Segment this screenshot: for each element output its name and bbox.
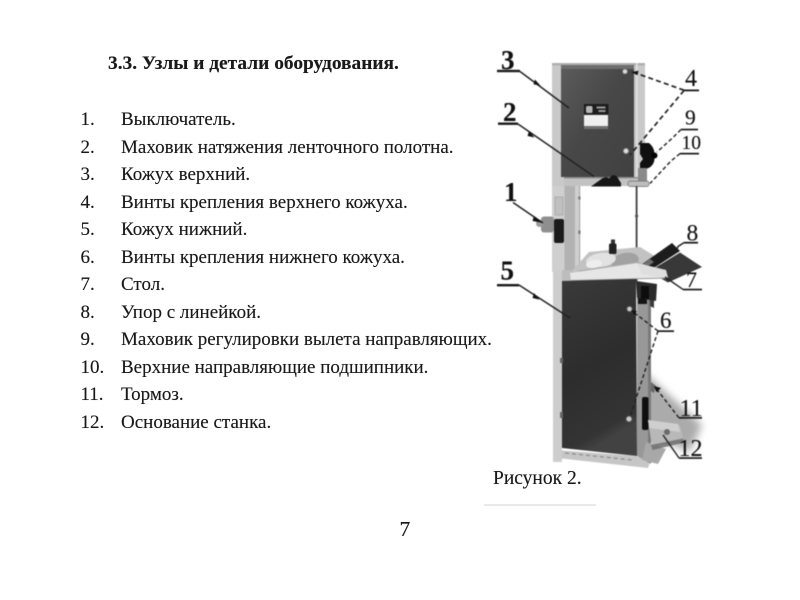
svg-text:9: 9 [685, 106, 696, 130]
svg-text:10: 10 [682, 133, 702, 154]
svg-text:4: 4 [685, 66, 697, 92]
svg-text:5: 5 [501, 256, 515, 286]
svg-text:1: 1 [504, 177, 518, 207]
svg-text:6: 6 [660, 308, 672, 333]
svg-text:7: 7 [686, 267, 697, 292]
